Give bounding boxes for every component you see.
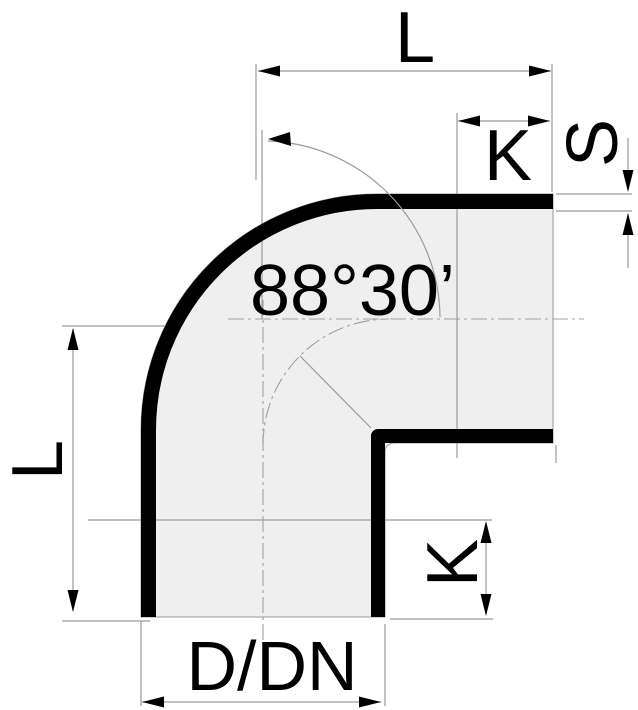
technical-drawing-canvas: L K S 88°30’ L K D/DN: [0, 0, 638, 710]
arrow-right-icon: [529, 66, 551, 77]
inner-corner-wall: [378, 436, 553, 617]
label-top-socket-depth: K: [484, 116, 532, 196]
arrow-right-icon: [359, 697, 381, 708]
arrow-down-icon: [623, 170, 634, 192]
arrow-left-icon: [458, 116, 480, 127]
arrow-up-icon: [623, 213, 634, 235]
arrow-up-icon: [68, 328, 79, 350]
pipe-elbow-drawing: L K S 88°30’ L K D/DN: [0, 0, 638, 710]
label-left-length: L: [0, 440, 78, 480]
dimension-left-length: L: [0, 328, 79, 612]
label-bottom-socket-depth: K: [413, 539, 493, 587]
dimension-bottom-socket-depth: K: [413, 521, 493, 616]
dimension-diameter: D/DN: [142, 627, 381, 708]
label-bend-angle: 88°30’: [250, 251, 455, 331]
label-wall-thickness: S: [553, 119, 633, 167]
arrow-left-icon: [142, 697, 164, 708]
dimension-top-length: L: [258, 0, 551, 78]
arrow-left-icon: [258, 66, 280, 77]
label-diameter: D/DN: [186, 627, 357, 705]
arrow-down-icon: [481, 594, 492, 616]
arrow-left-icon: [268, 132, 291, 146]
label-top-length: L: [395, 0, 435, 78]
dimension-top-socket-depth: K: [458, 116, 550, 197]
arrow-down-icon: [68, 590, 79, 612]
